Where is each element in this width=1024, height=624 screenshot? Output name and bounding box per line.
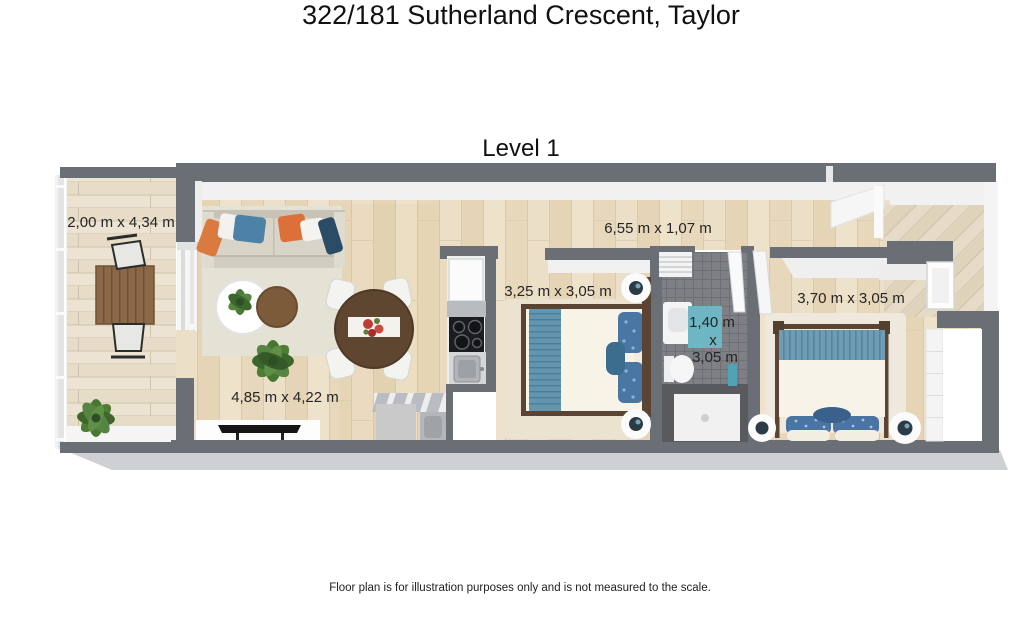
svg-text:2,00 m x 4,34 m: 2,00 m x 4,34 m bbox=[67, 214, 175, 231]
svg-text:x: x bbox=[709, 332, 717, 349]
svg-text:Floor plan is for illustration: Floor plan is for illustration purposes … bbox=[329, 582, 711, 594]
svg-text:4,85 m x 4,22 m: 4,85 m x 4,22 m bbox=[231, 389, 339, 406]
svg-text:Level 1: Level 1 bbox=[482, 135, 559, 162]
svg-text:3,70 m x 3,05 m: 3,70 m x 3,05 m bbox=[797, 290, 905, 307]
svg-text:6,55 m x 1,07 m: 6,55 m x 1,07 m bbox=[604, 220, 712, 237]
svg-text:1,40 m: 1,40 m bbox=[689, 314, 735, 331]
svg-text:322/181 Sutherland Crescent, T: 322/181 Sutherland Crescent, Taylor bbox=[302, 0, 740, 30]
svg-text:3,05 m: 3,05 m bbox=[692, 349, 738, 366]
svg-text:3,25 m x 3,05 m: 3,25 m x 3,05 m bbox=[504, 283, 612, 300]
